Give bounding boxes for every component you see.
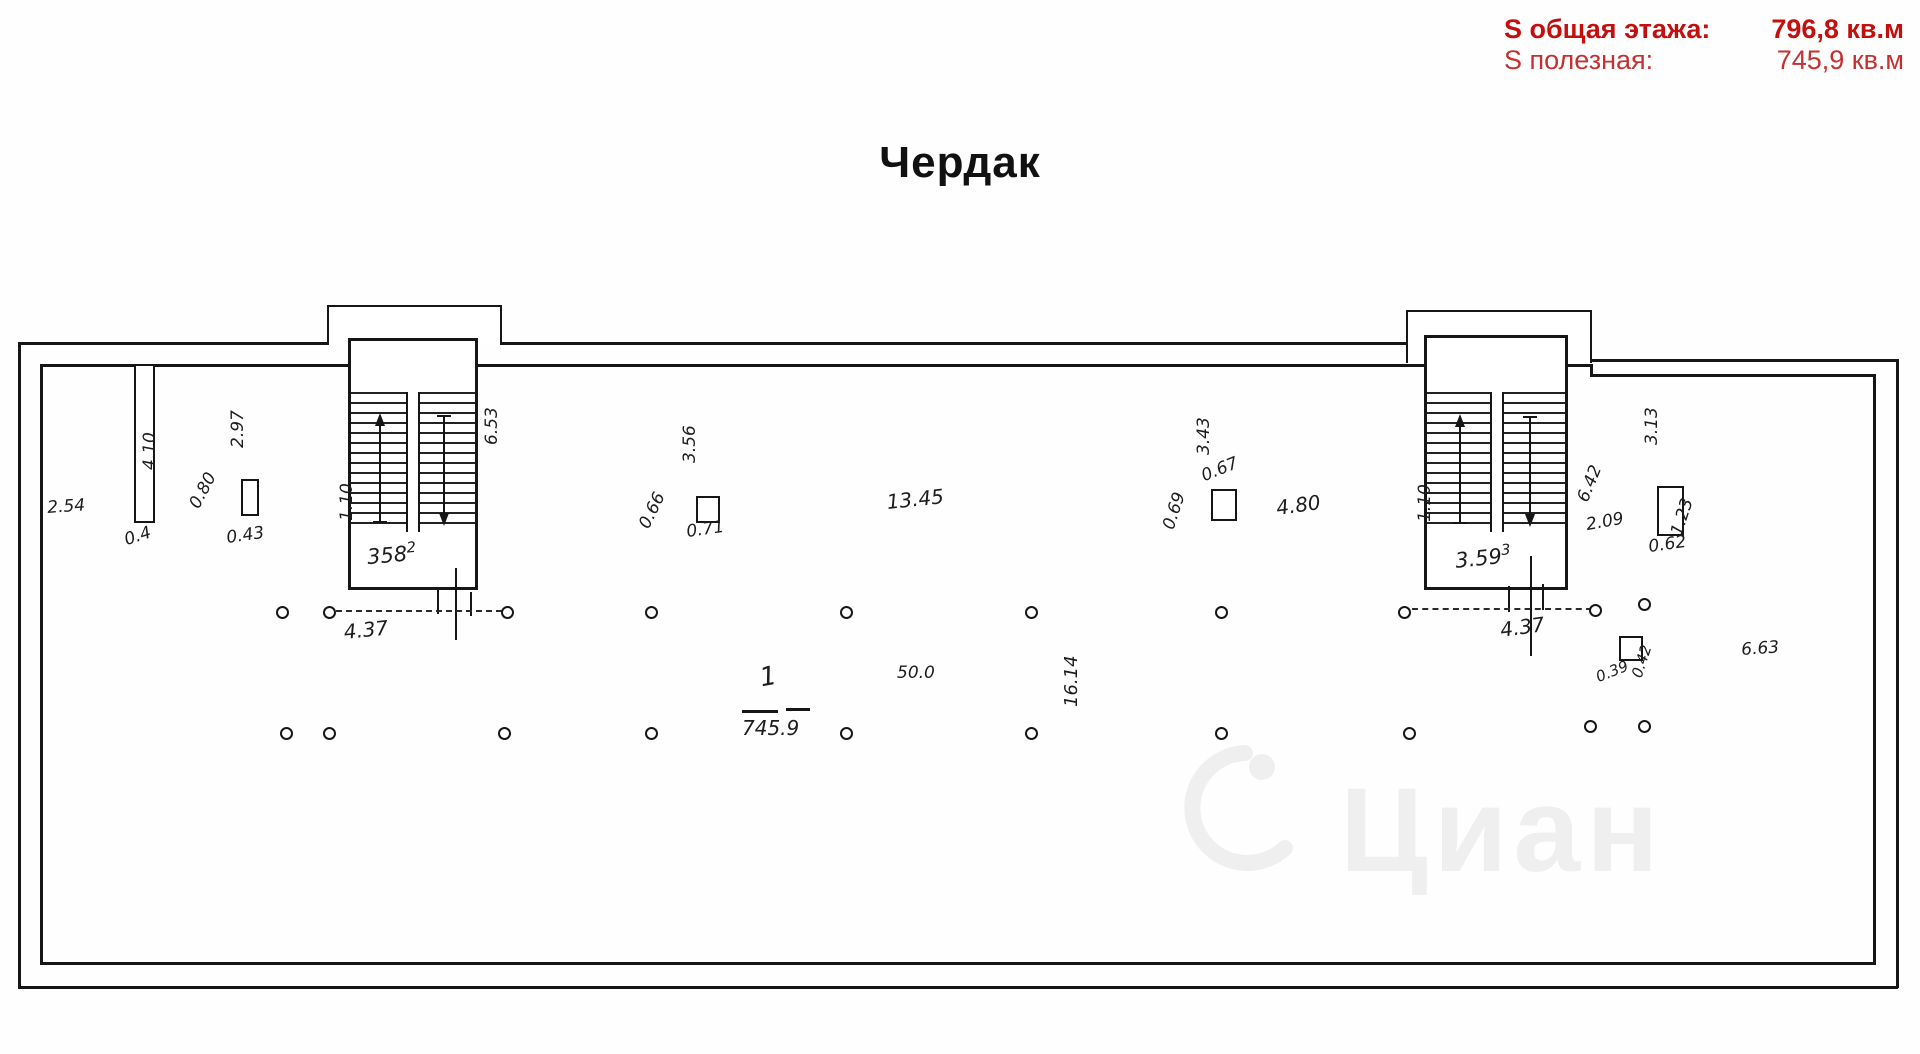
room-number-underline [742, 710, 778, 713]
cian-bird-icon [1150, 733, 1330, 913]
stair-down-arrow-icon [1525, 514, 1535, 527]
dim-0-80: 0.80 [185, 469, 220, 512]
cian-watermark: Циан [1150, 733, 1750, 933]
stair-base-wall-line [1412, 608, 1592, 610]
dim-2-97: 2.97 [228, 410, 248, 448]
stair-up-arrow-shaft [379, 425, 381, 523]
dim-extension-line [455, 568, 457, 640]
wall-top-outer-right [1590, 359, 1898, 362]
pier-column [1211, 489, 1237, 521]
right-stair-flow-label: 1.10 [1415, 484, 1435, 522]
wall-top-inner-right [1590, 374, 1876, 377]
dim-0-62: 0.62 [1647, 532, 1687, 557]
pier-column [241, 479, 259, 516]
left-stair-room-number: 2 [406, 539, 417, 557]
dim-6-63: 6.63 [1741, 637, 1780, 660]
total-area-label: S общая этажа: [1504, 14, 1710, 45]
column-circle [323, 727, 336, 740]
stair-up-arrow-shaft [1459, 426, 1461, 524]
wall-top-inner-left [40, 364, 1592, 367]
left-stairwell: 1.10 3582 [348, 338, 478, 590]
wall-bottom-outer [18, 986, 1898, 989]
column-circle [840, 606, 853, 619]
column-circle [645, 606, 658, 619]
dim-2-54: 2.54 [47, 495, 86, 518]
floor-plan-page: S общая этажа: 796,8 кв.м S полезная: 74… [0, 0, 1920, 1054]
dim-0-43: 0.43 [225, 523, 265, 548]
dim-0-66: 0.66 [635, 489, 670, 532]
dim-3-13: 3.13 [1642, 407, 1662, 445]
dim-4-80: 4.80 [1275, 490, 1322, 520]
stair-down-arrow-shaft [1529, 418, 1531, 516]
hall-room-number: 1 [758, 661, 780, 693]
column-circle [1025, 727, 1038, 740]
left-stair-room-label: 3582 [366, 539, 418, 569]
left-stair-width-dim: 4.37 [342, 615, 389, 644]
column-circle [840, 727, 853, 740]
dim-13-45: 13.45 [885, 484, 944, 514]
usable-area-value: 745,9 кв.м [1777, 45, 1904, 76]
column-circle [1215, 606, 1228, 619]
dim-3-43: 3.43 [1194, 417, 1214, 455]
column-circle [323, 606, 336, 619]
dim-4-10: 4.10 [140, 432, 160, 470]
dim-6-53: 6.53 [482, 407, 502, 445]
column-circle [501, 606, 514, 619]
dim-16-14: 16.14 [1061, 655, 1082, 707]
right-stair-room-label: 3.593 [1454, 541, 1513, 573]
column-circle [645, 727, 658, 740]
wall-top-outer-mid [500, 342, 1408, 345]
right-stair-room-area: 3.59 [1454, 544, 1503, 573]
stair-up-arrow-tail [1453, 522, 1467, 524]
wall-left-outer [18, 342, 21, 988]
right-stairwell: 1.10 3.593 [1424, 335, 1568, 590]
column-circle [1638, 598, 1651, 611]
stair-up-arrow-tail [373, 521, 387, 523]
area-summary: S общая этажа: 796,8 кв.м S полезная: 74… [1504, 14, 1904, 76]
total-area-value: 796,8 кв.м [1771, 14, 1904, 45]
right-stair-width-dim: 4.37 [1499, 612, 1546, 642]
dim-0-67: 0.67 [1199, 453, 1242, 486]
stair-stringer [406, 392, 420, 532]
dim-6-42: 6.42 [1573, 462, 1606, 505]
dim-tick [470, 592, 472, 616]
column-circle [1398, 606, 1411, 619]
stair-base-wall-line [336, 610, 502, 612]
usable-area-label: S полезная: [1504, 45, 1653, 76]
dim-0-69: 0.69 [1159, 490, 1190, 532]
hall-area: 745.9 [742, 716, 799, 740]
wall-right-inner [1873, 374, 1876, 965]
page-title: Чердак [879, 138, 1041, 188]
dim-50-0: 50.0 [897, 663, 935, 683]
wall-left-inner [40, 364, 43, 965]
column-circle [1025, 606, 1038, 619]
dim-extension-line [1530, 556, 1532, 656]
left-stair-room-area: 358 [366, 542, 408, 569]
column-circle [1638, 720, 1651, 733]
dim-0-4: 0.4 [122, 523, 154, 550]
column-circle [1584, 720, 1597, 733]
wall-bottom-inner [40, 962, 1876, 965]
dim-0-39: 0.39 [1593, 657, 1631, 686]
column-circle [498, 727, 511, 740]
wall-right-outer [1896, 359, 1899, 988]
right-stair-room-number: 3 [1500, 541, 1511, 559]
dim-0-71: 0.71 [685, 517, 725, 542]
dim-tick [1542, 584, 1544, 610]
stair-down-arrow-icon [439, 513, 449, 526]
wall-top-outer-left [18, 342, 329, 345]
watermark-text: Циан [1340, 761, 1665, 899]
column-circle [280, 727, 293, 740]
dim-2-09: 2.09 [1585, 509, 1626, 535]
left-stair-flow-label: 1.10 [337, 483, 357, 521]
column-circle [1589, 604, 1602, 617]
room-number-underline [786, 708, 810, 711]
stair-stringer [1490, 392, 1504, 532]
stair-down-arrow-shaft [443, 417, 445, 515]
dim-3-56: 3.56 [680, 425, 700, 463]
column-circle [276, 606, 289, 619]
